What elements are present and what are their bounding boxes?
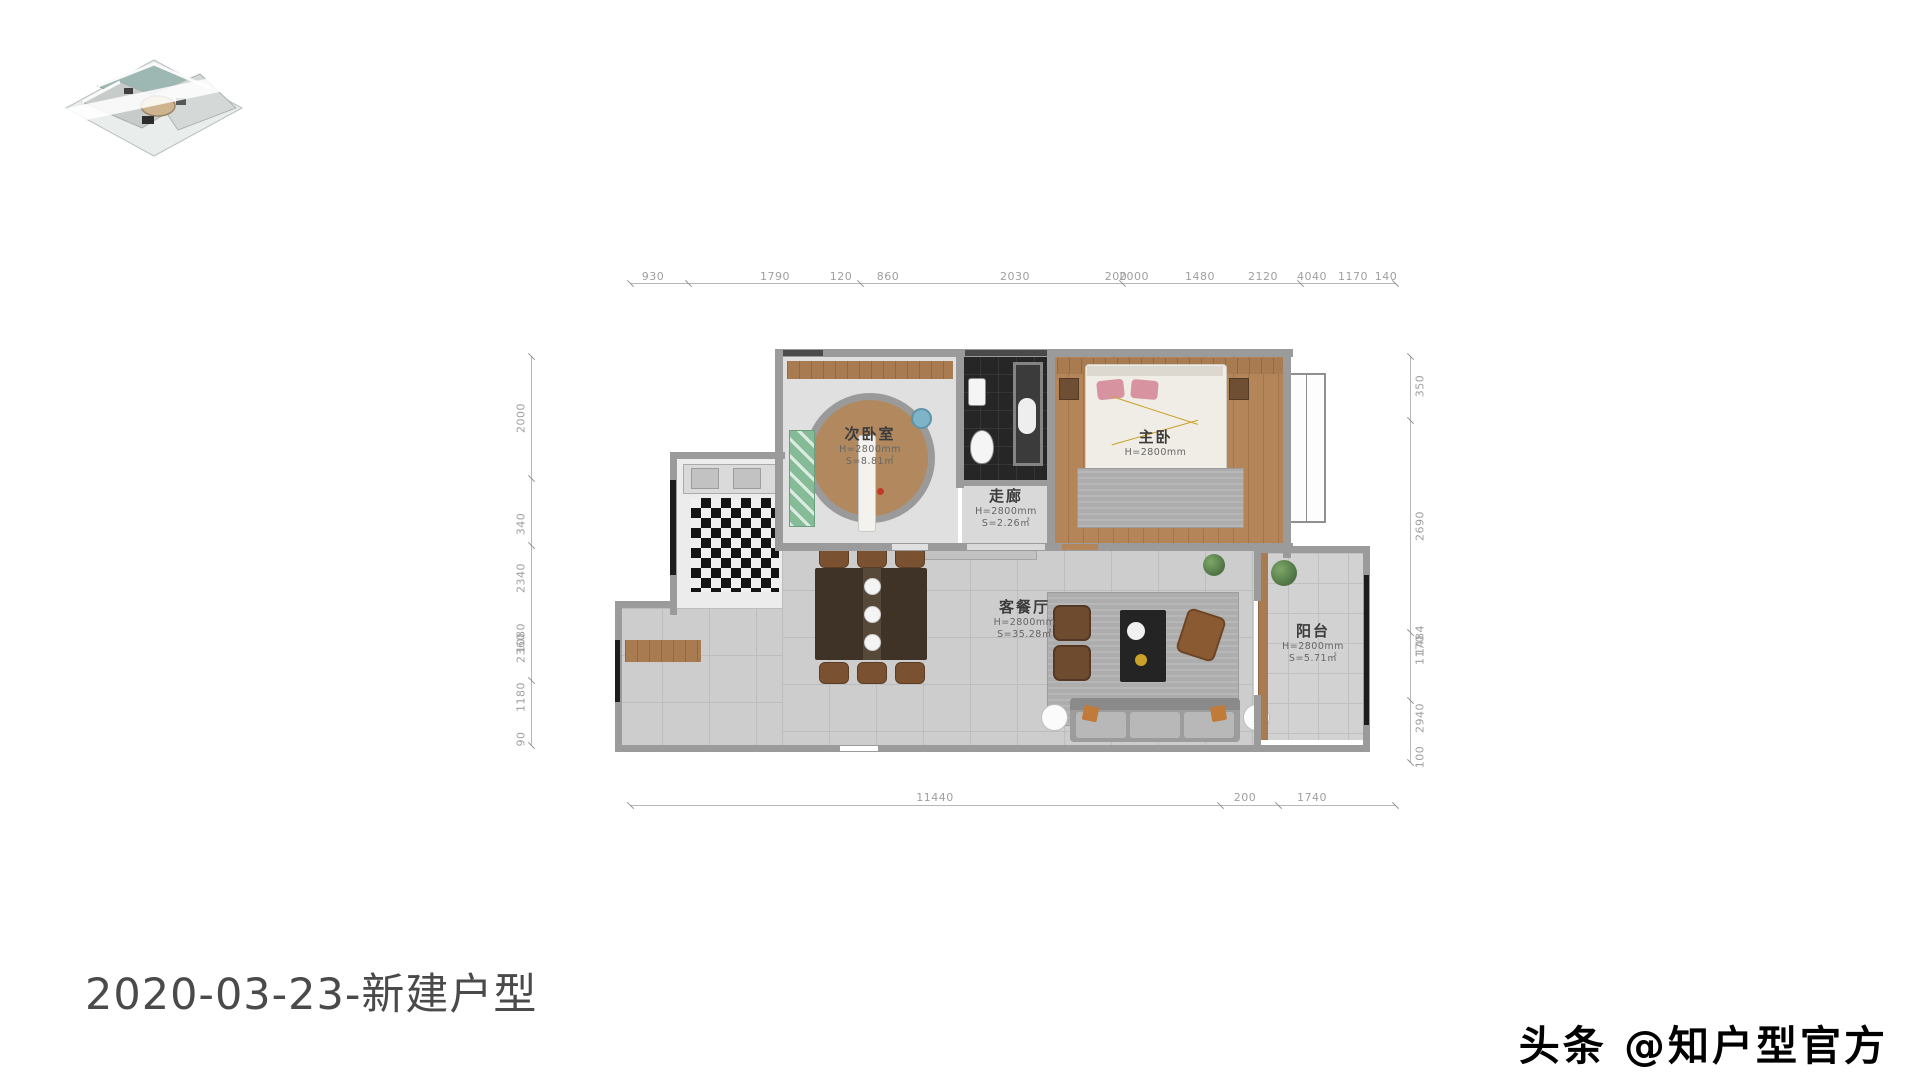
wall bbox=[960, 480, 1052, 486]
dining-chair bbox=[819, 662, 849, 684]
room-height: H=2800mm bbox=[1273, 641, 1353, 653]
sink bbox=[968, 378, 986, 406]
wall bbox=[1254, 546, 1370, 553]
room-name: 阳台 bbox=[1273, 622, 1353, 641]
watermark: 头条 @知户型官方 bbox=[1519, 1012, 1888, 1072]
dining-chair bbox=[895, 662, 925, 684]
pillow-orange bbox=[1082, 705, 1100, 723]
room-entry-hall bbox=[615, 608, 782, 747]
room-area: S=35.28㎡ bbox=[967, 629, 1082, 641]
headboard bbox=[1087, 366, 1223, 376]
dimension-label: 2000 bbox=[1119, 270, 1149, 283]
balcony-window bbox=[1364, 575, 1369, 725]
wall bbox=[670, 452, 785, 459]
sofa-cushion bbox=[1130, 712, 1180, 738]
dimension-label: 2690 bbox=[1414, 511, 1427, 541]
floorplan-3d-thumbnail bbox=[58, 30, 248, 165]
room-height: H=2800mm bbox=[1113, 447, 1198, 459]
corridor-opening bbox=[967, 544, 1045, 550]
dimension-label: 1170 bbox=[1338, 270, 1368, 283]
dimension-label: 930 bbox=[642, 270, 665, 283]
dimension-label: 120 bbox=[830, 270, 853, 283]
dimension-label: 200 bbox=[1234, 791, 1257, 804]
bay-window-mullion bbox=[1306, 375, 1307, 521]
label-corridor: 走廊 H=2800mm S=2.26㎡ bbox=[963, 487, 1049, 530]
dimension-label: 2000 bbox=[515, 403, 528, 433]
kitchen-pattern-floor bbox=[691, 498, 779, 592]
dimension-label: 140 bbox=[1375, 270, 1398, 283]
wall bbox=[1254, 546, 1261, 601]
wall bbox=[775, 452, 783, 551]
dining-chair bbox=[857, 662, 887, 684]
bed-end-rug bbox=[1077, 468, 1244, 528]
dimension-label: 2030 bbox=[1000, 270, 1030, 283]
decor-bowl bbox=[1135, 654, 1147, 666]
bay-window bbox=[1288, 373, 1326, 523]
dimension-label: 11440 bbox=[916, 791, 954, 804]
plant bbox=[1203, 554, 1225, 576]
dimension-label: 2340 bbox=[515, 563, 528, 593]
floor-plan: 次卧室 H=2800mm S=8.81㎡ 走廊 H=2800mm S=2.26㎡… bbox=[615, 340, 1375, 760]
armchair bbox=[1053, 645, 1091, 681]
kitchen-window bbox=[670, 480, 676, 575]
dimension-label: 1740 bbox=[1297, 791, 1327, 804]
coffee-table bbox=[1120, 610, 1166, 682]
dimension-label: 1480 bbox=[1185, 270, 1215, 283]
room-area: S=8.81㎡ bbox=[810, 456, 930, 468]
red-accent bbox=[877, 488, 884, 495]
entry-bench bbox=[625, 640, 701, 662]
label-second-bedroom: 次卧室 H=2800mm S=8.81㎡ bbox=[810, 425, 930, 468]
bath-mat bbox=[1018, 398, 1036, 434]
room-height: H=2800mm bbox=[967, 617, 1082, 629]
nightstand-left bbox=[1059, 378, 1079, 400]
pillow-pink-right bbox=[1130, 379, 1159, 400]
dimension-label: 1170 bbox=[1414, 635, 1427, 665]
toilet bbox=[970, 430, 994, 464]
entry-door-opening bbox=[840, 746, 878, 751]
entry-window bbox=[615, 640, 620, 702]
door-opening bbox=[1062, 544, 1098, 550]
label-balcony: 阳台 H=2800mm S=5.71㎡ bbox=[1273, 622, 1353, 665]
kitchen-appliance bbox=[733, 468, 761, 489]
nightstand-right bbox=[1229, 378, 1249, 400]
label-living-dining: 客餐厅 H=2800mm S=35.28㎡ bbox=[967, 598, 1082, 641]
bathroom-top-wall bbox=[965, 350, 1047, 356]
plate bbox=[864, 606, 881, 623]
dimension-label: 1790 bbox=[760, 270, 790, 283]
side-table bbox=[1041, 704, 1068, 731]
dimension-label: 860 bbox=[877, 270, 900, 283]
page: 930 1790 120 860 2030 200 2000 1480 2120… bbox=[0, 0, 1920, 1080]
plate bbox=[864, 634, 881, 651]
dimension-label: 340 bbox=[515, 513, 528, 536]
dimension-label: 350 bbox=[1414, 375, 1427, 398]
wall bbox=[1254, 695, 1261, 752]
room-area: S=2.26㎡ bbox=[963, 518, 1049, 530]
room-height: H=2800mm bbox=[963, 506, 1049, 518]
room-height: H=2800mm bbox=[810, 444, 930, 456]
tray bbox=[1127, 622, 1145, 640]
pillow-orange bbox=[1210, 705, 1227, 722]
pillow-pink-left bbox=[1096, 379, 1125, 401]
page-title: 2020-03-23-新建户型 bbox=[85, 960, 537, 1022]
bedroom-top-accent bbox=[783, 350, 823, 356]
dimension-label: 2360 bbox=[515, 633, 528, 663]
wall bbox=[615, 601, 677, 608]
wall bbox=[956, 349, 964, 488]
room-name: 次卧室 bbox=[810, 425, 930, 444]
room-name: 客餐厅 bbox=[967, 598, 1082, 617]
balcony-plant bbox=[1271, 560, 1297, 586]
dimension-label: 2940 bbox=[1414, 703, 1427, 733]
dimension-label: 100 bbox=[1414, 746, 1427, 769]
dimension-label: 4040 bbox=[1297, 270, 1327, 283]
kitchen-appliance bbox=[691, 468, 719, 489]
label-master-bedroom: 主卧 H=2800mm bbox=[1113, 428, 1198, 459]
room-name: 主卧 bbox=[1113, 428, 1198, 447]
room-area: S=5.71㎡ bbox=[1273, 653, 1353, 665]
door-opening bbox=[892, 544, 928, 550]
plate bbox=[864, 578, 881, 595]
dimension-line-top bbox=[630, 283, 1395, 284]
wardrobe-top bbox=[787, 361, 953, 379]
room-name: 走廊 bbox=[963, 487, 1049, 506]
dimension-label: 1180 bbox=[515, 682, 528, 712]
dimension-line-left bbox=[531, 356, 532, 745]
wall bbox=[1283, 349, 1291, 558]
dimension-label: 2120 bbox=[1248, 270, 1278, 283]
dimension-label: 90 bbox=[515, 732, 528, 747]
